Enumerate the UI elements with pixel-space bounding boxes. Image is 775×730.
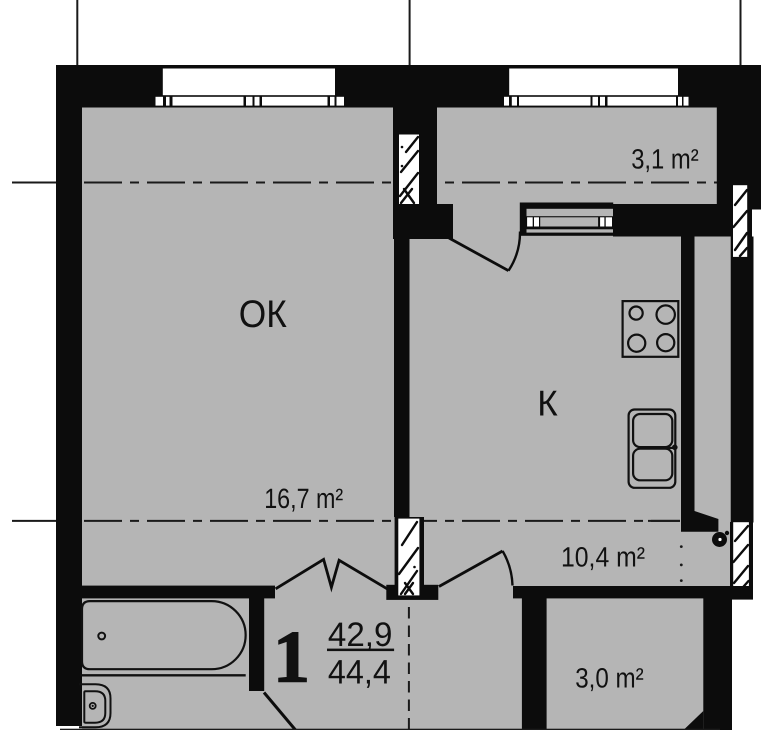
svg-text:К: К	[537, 382, 558, 423]
svg-text:16,7 m²: 16,7 m²	[264, 483, 343, 514]
svg-text:1: 1	[273, 616, 310, 698]
svg-text:3,1 m²: 3,1 m²	[631, 144, 699, 175]
svg-text:ОК: ОК	[239, 293, 288, 336]
svg-text:3,0 m²: 3,0 m²	[575, 663, 644, 694]
svg-text:42,9: 42,9	[328, 616, 393, 654]
svg-text:44,4: 44,4	[328, 653, 391, 691]
svg-text:10,4 m²: 10,4 m²	[561, 542, 645, 573]
